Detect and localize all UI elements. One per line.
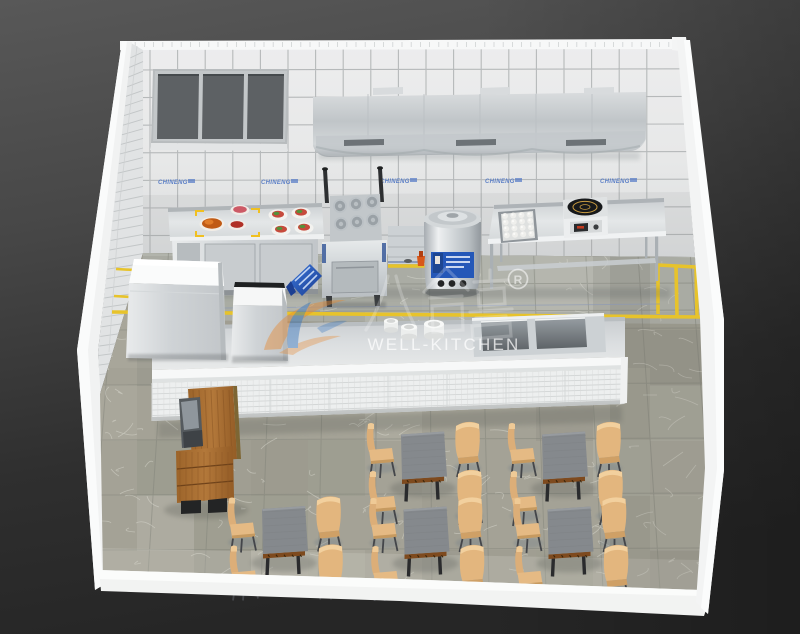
svg-text:CHINENG: CHINENG [600,179,630,185]
svg-text:CHINENG: CHINENG [380,179,410,185]
svg-text:WELL-KITCHEN: WELL-KITCHEN [368,335,521,354]
svg-text:R: R [514,273,523,287]
svg-text:CHINENG: CHINENG [485,179,515,185]
svg-text:CHINENG: CHINENG [261,180,291,186]
svg-text:CHINENG: CHINENG [158,180,188,186]
